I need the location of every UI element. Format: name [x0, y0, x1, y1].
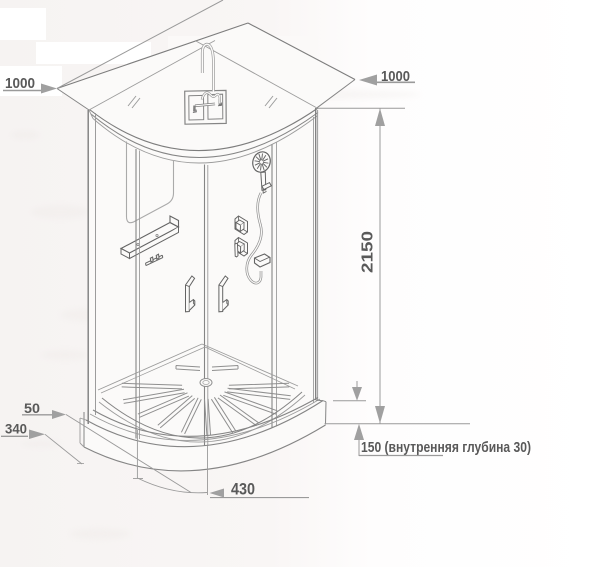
svg-text:2150: 2150	[360, 231, 377, 273]
svg-text:340: 340	[5, 421, 27, 437]
svg-text:1000: 1000	[5, 75, 35, 92]
svg-text:50: 50	[24, 400, 40, 416]
svg-text:430: 430	[231, 481, 255, 499]
svg-text:150 (внутренняя глубина 30): 150 (внутренняя глубина 30)	[361, 440, 531, 456]
svg-text:1000: 1000	[381, 68, 410, 85]
